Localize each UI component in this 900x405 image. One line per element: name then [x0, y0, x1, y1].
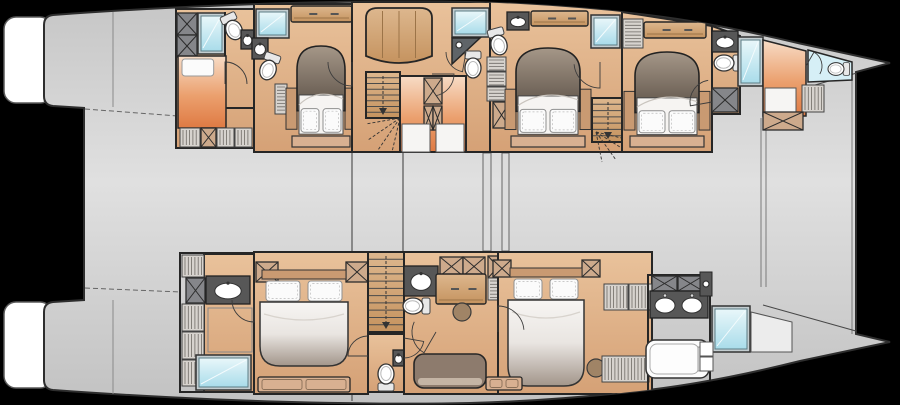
- handle: [309, 13, 317, 15]
- bedside-post: [624, 91, 635, 130]
- duvet: [508, 300, 584, 386]
- handle: [568, 18, 576, 20]
- deck-hatch: [483, 153, 491, 251]
- basin: [255, 44, 266, 55]
- teak-grate: [602, 356, 649, 382]
- pillow: [266, 281, 300, 301]
- overhead-cabinet: [644, 22, 706, 38]
- sofa-seat-edge: [418, 378, 482, 385]
- locker: [487, 57, 506, 71]
- twin-berth-mattress: [436, 124, 464, 152]
- locker: [487, 72, 506, 86]
- pillow: [182, 59, 214, 76]
- pillow: [308, 281, 342, 301]
- berth-foot-sheet: [765, 88, 796, 114]
- handle: [684, 29, 692, 31]
- faucet: [723, 35, 726, 38]
- locker: [217, 128, 234, 147]
- foot-bench: [486, 377, 522, 390]
- toilet: [828, 63, 850, 76]
- twin-berth-mattress: [402, 124, 430, 152]
- locker: [487, 87, 506, 101]
- faucet: [397, 353, 400, 356]
- floor-plan-svg: [0, 0, 900, 405]
- basin: [703, 281, 709, 287]
- locker: [235, 128, 252, 147]
- catamaran-deck-plan: [0, 0, 900, 405]
- locker: [275, 84, 287, 114]
- pillow: [550, 279, 578, 299]
- foot-board: [630, 136, 704, 147]
- duvet: [260, 302, 348, 366]
- basin: [655, 298, 675, 313]
- deck-hatch: [502, 153, 509, 251]
- faucet: [258, 42, 261, 45]
- foot-board: [511, 136, 585, 147]
- faucet: [663, 294, 666, 297]
- toilet: [403, 298, 430, 314]
- toilet: [714, 55, 741, 71]
- bedside-post: [580, 89, 591, 129]
- foot-board: [292, 136, 350, 147]
- handle: [548, 18, 556, 20]
- toilet: [378, 364, 394, 391]
- double-bed: [505, 48, 591, 147]
- faucet: [419, 272, 422, 275]
- pillow: [520, 109, 546, 132]
- overhead-cabinet: [531, 11, 588, 26]
- faucet: [226, 282, 229, 285]
- overhead-cabinet: [291, 6, 352, 22]
- faucet: [246, 34, 249, 37]
- headboard: [510, 268, 582, 277]
- bedside-post: [505, 89, 516, 129]
- handle: [469, 288, 477, 290]
- pillow: [639, 111, 665, 133]
- headboard: [262, 270, 346, 279]
- basin: [682, 298, 702, 313]
- handle: [451, 288, 459, 290]
- shower-head: [456, 42, 462, 48]
- pillow: [550, 109, 576, 132]
- bow-shelf: [700, 357, 713, 371]
- bedside-post: [286, 88, 297, 129]
- double-bed: [624, 52, 710, 147]
- basin: [411, 274, 431, 291]
- pillow: [669, 111, 695, 133]
- bedside-post: [699, 91, 710, 130]
- handle: [663, 29, 671, 31]
- basin: [716, 37, 734, 48]
- handle: [331, 13, 339, 15]
- bow-shelf: [700, 342, 713, 356]
- toilet: [465, 51, 481, 78]
- pillow: [514, 279, 542, 299]
- faucet: [690, 294, 693, 297]
- locker: [623, 19, 643, 48]
- stool: [453, 303, 471, 321]
- faucet: [516, 16, 519, 19]
- basin: [215, 283, 241, 299]
- shelves: [604, 284, 628, 310]
